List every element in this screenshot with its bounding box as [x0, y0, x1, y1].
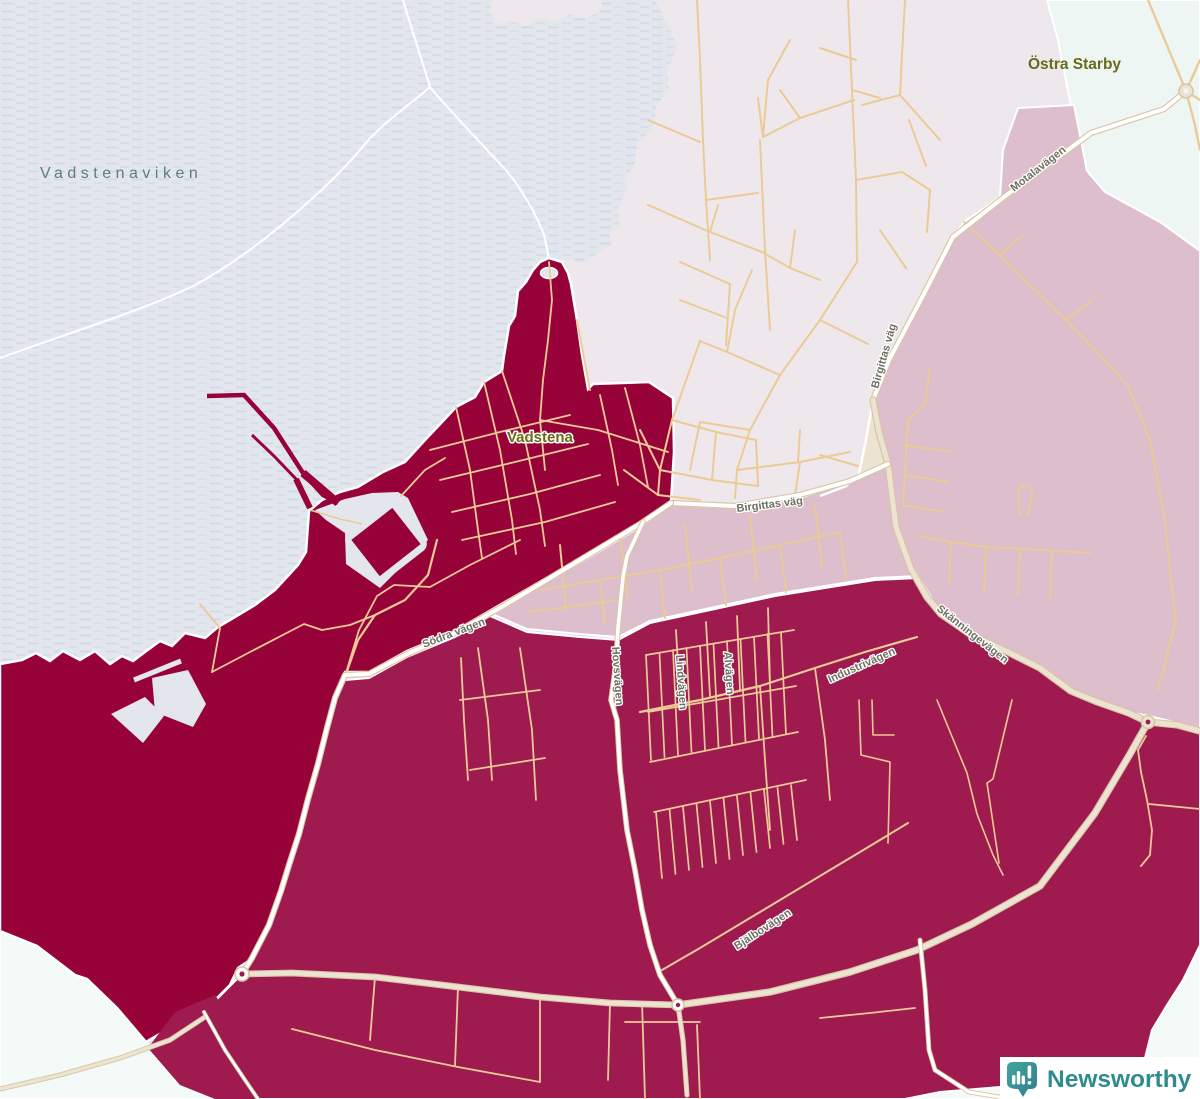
svg-text:Newsworthy: Newsworthy	[1047, 1066, 1192, 1093]
svg-text:Vadstena: Vadstena	[507, 429, 574, 446]
svg-text:Vadstenaviken: Vadstenaviken	[40, 165, 202, 182]
svg-text:Östra Starby: Östra Starby	[1028, 56, 1121, 73]
